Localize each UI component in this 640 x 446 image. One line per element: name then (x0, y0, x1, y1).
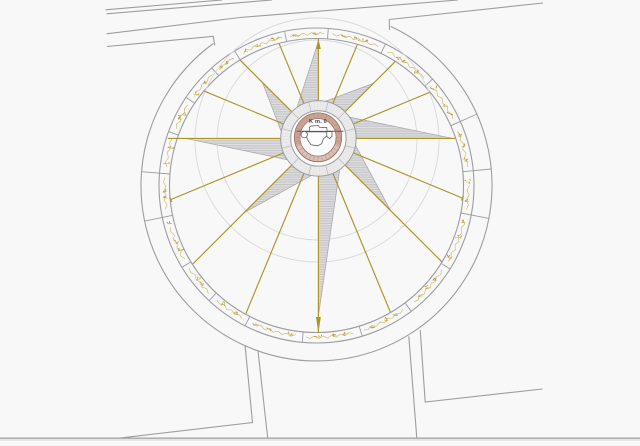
svg-text:K m. 0: K m. 0 (309, 119, 327, 125)
